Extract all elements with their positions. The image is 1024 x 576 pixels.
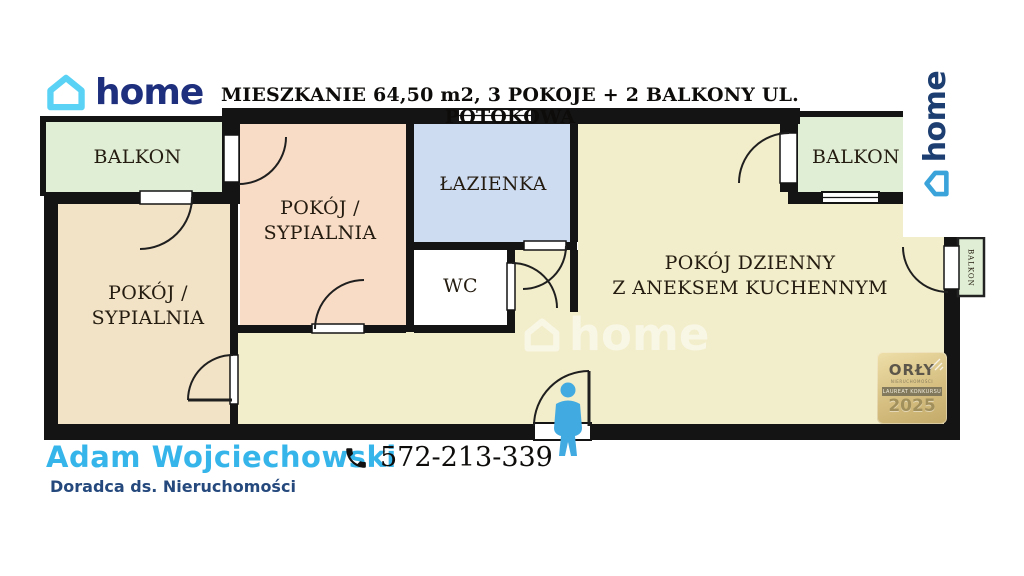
home-watermark-icon: [524, 318, 560, 352]
badge-year: 2025: [888, 398, 935, 415]
home-logo-icon: [924, 170, 949, 197]
label-wc: WC: [412, 274, 509, 299]
phone-icon: [343, 445, 369, 471]
side-logo-text: home: [921, 71, 951, 163]
label-balcony-right: BALKON: [800, 145, 912, 170]
watermark-text: home: [569, 312, 709, 357]
label-balcony-left: BALKON: [60, 145, 215, 170]
badge-band: LAUREAT KONKURSU: [882, 387, 942, 396]
listing-title: MIESZKANIE 64,50 m2, 3 POKOJE + 2 BALKON…: [205, 84, 815, 128]
label-living: POKÓJ DZIENNY Z ANEKSEM KUCHENNYM: [580, 251, 920, 300]
side-logo: home: [918, 54, 954, 214]
phone-number: 572-213-339: [380, 442, 553, 473]
label-balcony-small: BALKON: [957, 239, 984, 296]
award-badge: ORŁY NIERUCHOMOŚCI LAUREAT KONKURSU 2025: [877, 352, 947, 424]
badge-subtitle: NIERUCHOMOŚCI: [891, 379, 933, 384]
badge-rays-icon: [928, 355, 944, 371]
watermark: home: [524, 312, 709, 357]
flyer-page: { "brand": { "logo_text": "home" }, "sid…: [0, 0, 1024, 576]
label-bedroom-left: POKÓJ / SYPIALNIA: [63, 281, 233, 330]
label-bathroom: ŁAZIENKA: [412, 172, 574, 197]
phone-block: 572-213-339: [343, 442, 553, 473]
home-logo-icon: [46, 74, 86, 111]
brand-logo: home: [46, 74, 203, 111]
brand-logo-text: home: [95, 75, 203, 111]
agent-role: Doradca ds. Nieruchomości: [50, 477, 296, 496]
label-bedroom-pink: POKÓJ / SYPIALNIA: [235, 196, 405, 245]
